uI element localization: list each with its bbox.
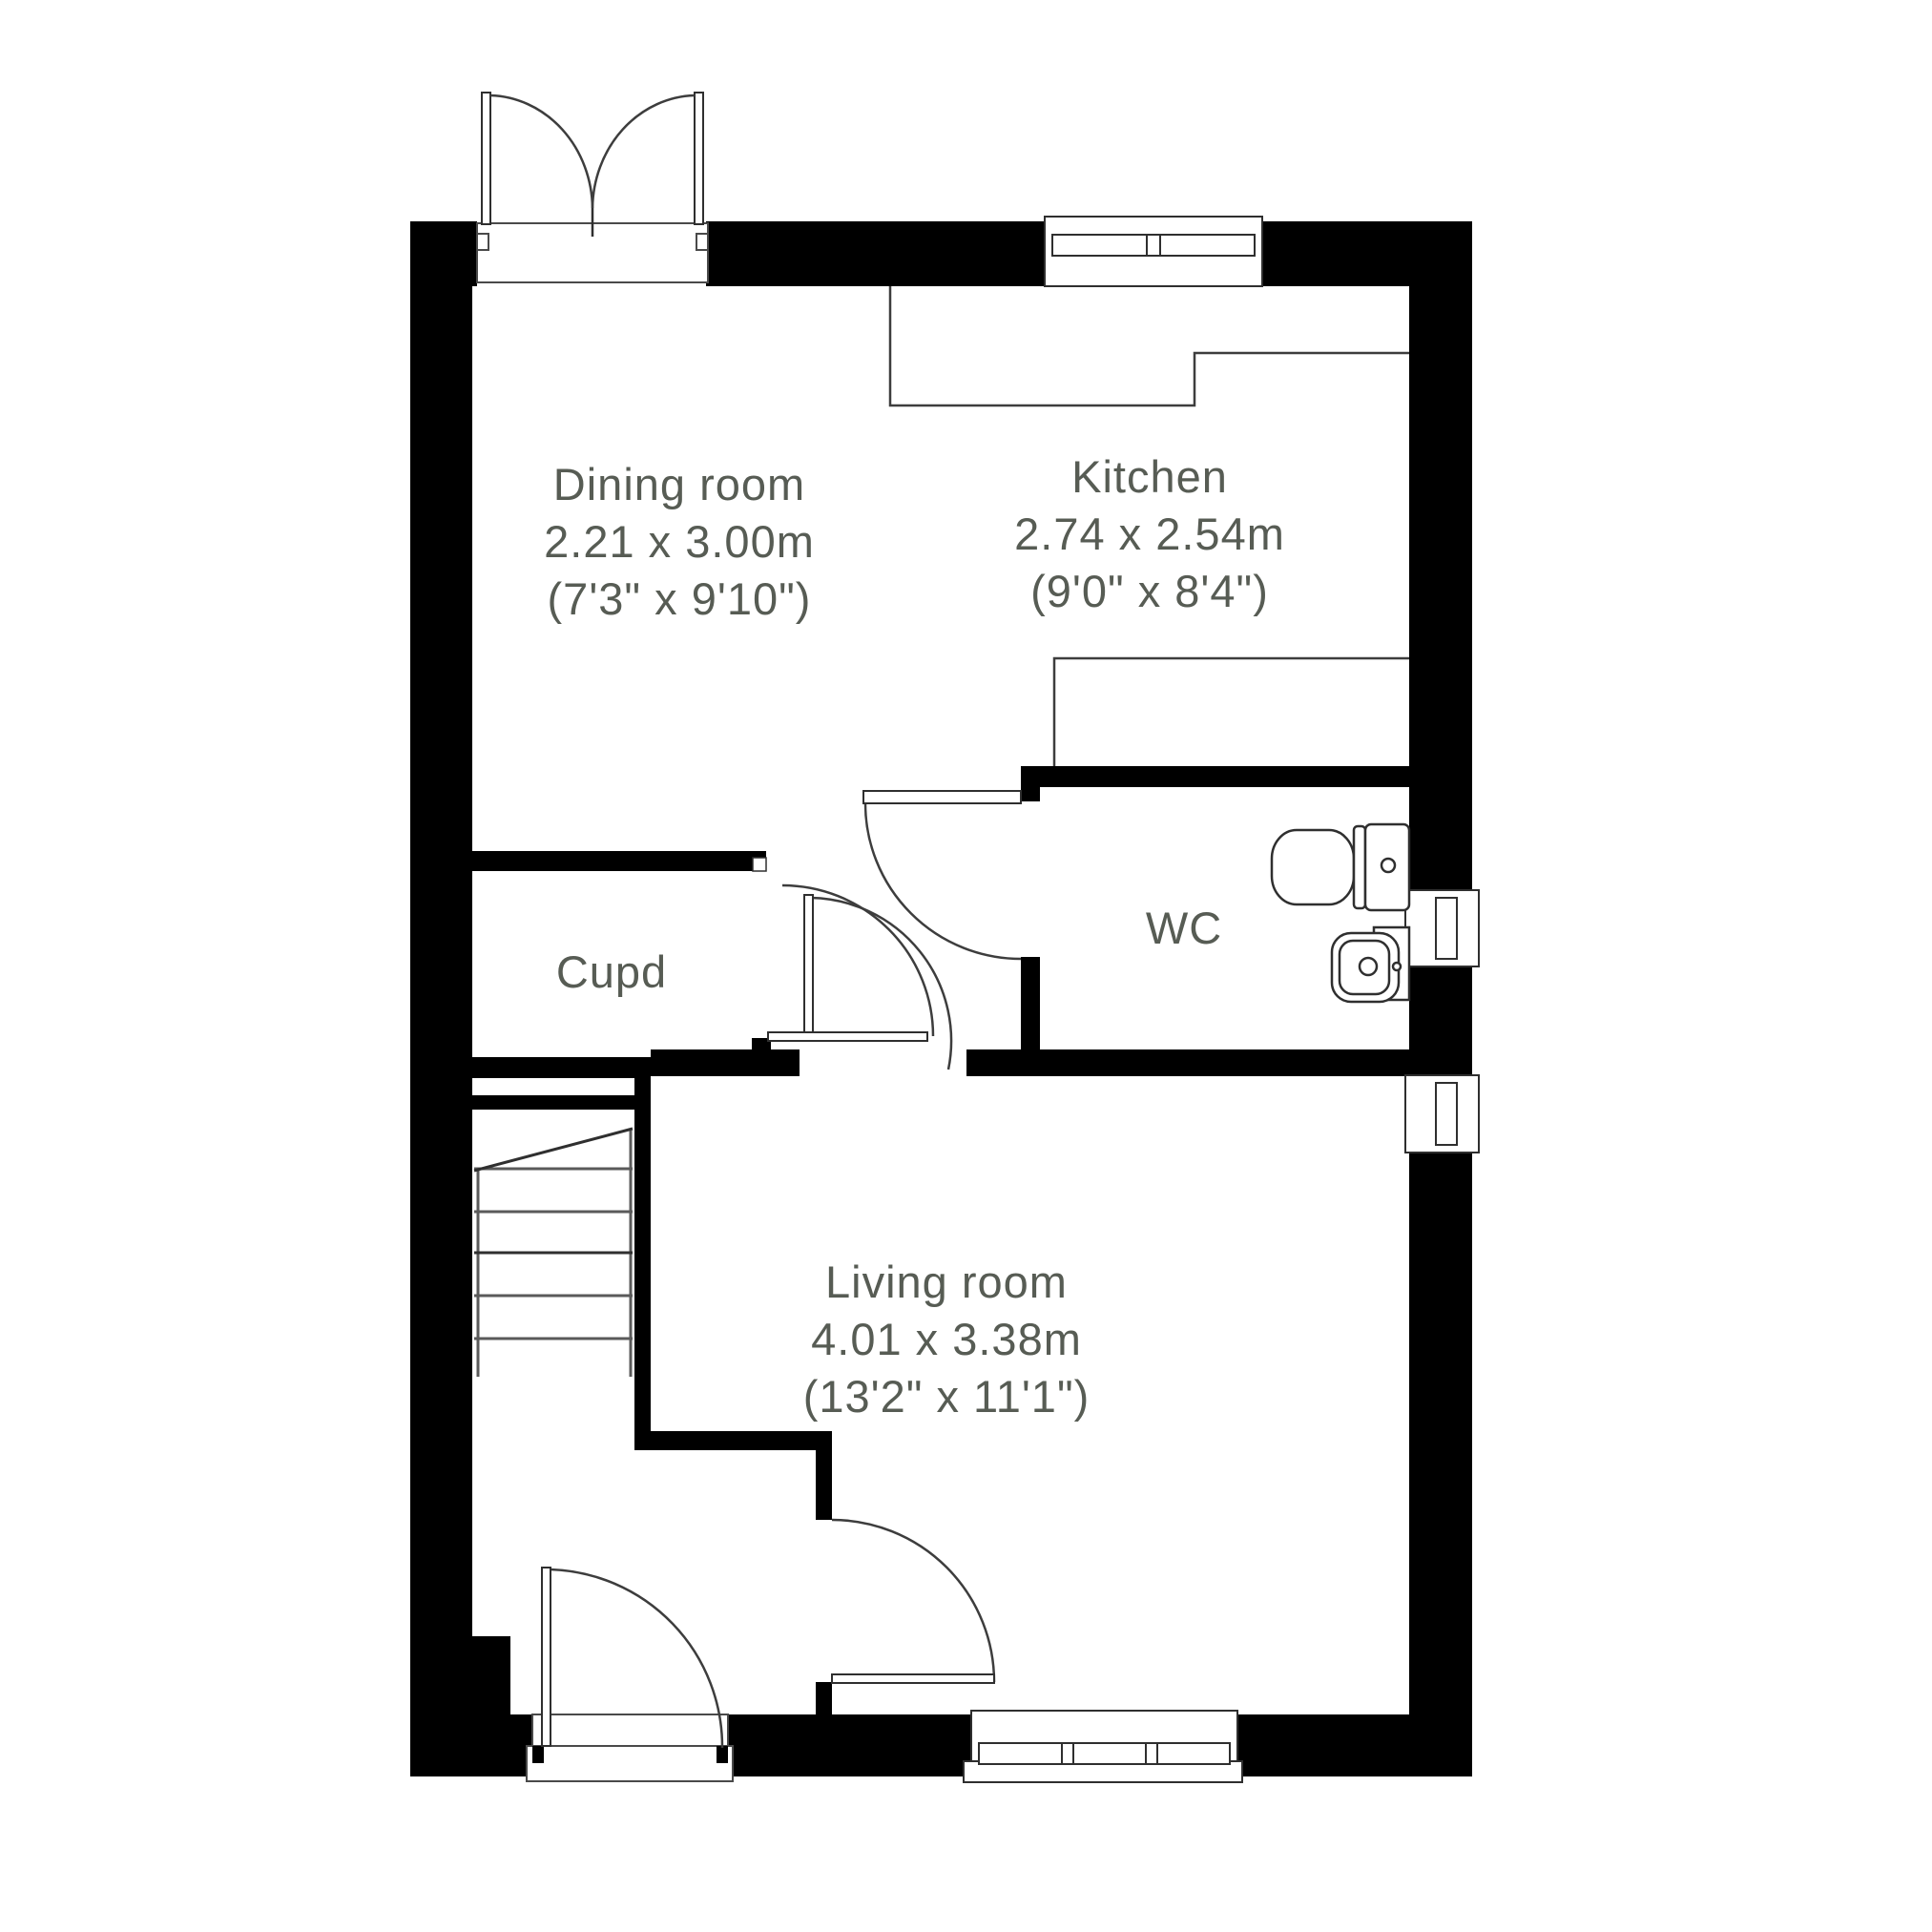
front-door (527, 1568, 733, 1781)
door-leaf (482, 93, 490, 224)
door-swing-arc (592, 95, 695, 208)
wc-top-wall (1021, 766, 1409, 787)
sink-icon (1332, 927, 1409, 1002)
window-glazing (979, 1743, 1230, 1764)
window-mullion (1147, 235, 1160, 256)
walls-interior (472, 766, 1409, 1714)
window-bottom (964, 1711, 1242, 1782)
door-swing-arc (865, 803, 1021, 959)
floorplan-drawing (0, 0, 1932, 1932)
room-size-metric: 4.01 x 3.38m (803, 1311, 1091, 1368)
door-jamb (696, 234, 708, 250)
room-name: Dining room (544, 456, 815, 513)
living-door-hinge-stub (816, 1682, 832, 1714)
door-leaf (832, 1674, 994, 1683)
floorplan: Dining room 2.21 x 3.00m (7'3" x 9'10") … (0, 0, 1932, 1932)
wall-segment (410, 1714, 532, 1776)
room-label-dining: Dining room 2.21 x 3.00m (7'3" x 9'10") (544, 456, 815, 628)
toilet-flush-button (1381, 859, 1395, 872)
french-doors (477, 93, 708, 282)
room-name: Kitchen (1014, 448, 1285, 506)
hall-south-wall-east (966, 1049, 1409, 1076)
room-name: WC (1146, 900, 1222, 957)
window-glazing (1436, 898, 1457, 959)
cupboard-wall-notch (753, 858, 766, 871)
wc-door-hinge-stub (1021, 766, 1040, 801)
toilet-icon (1272, 824, 1409, 910)
room-name: Living room (803, 1254, 1091, 1311)
kitchen-boundary-upper (890, 286, 1409, 405)
door-leaf (768, 1032, 927, 1041)
door-sill (527, 1746, 733, 1781)
wc-side-stub (1021, 957, 1040, 1052)
room-size-metric: 2.21 x 3.00m (544, 513, 815, 571)
wall-segment (728, 1714, 973, 1776)
door-stop (532, 1746, 544, 1763)
room-label-wc: WC (1146, 900, 1222, 957)
wall-segment (1409, 1153, 1472, 1776)
room-size-imperial: (9'0" x 8'4") (1014, 563, 1285, 620)
sink-tap (1393, 963, 1401, 970)
hall-south-wall-west (651, 1049, 800, 1076)
kitchen-boundary-lower (1054, 658, 1409, 766)
window-right-upper (1405, 890, 1479, 966)
toilet-bowl (1272, 830, 1354, 904)
room-label-kitchen: Kitchen 2.74 x 2.54m (9'0" x 8'4") (1014, 448, 1285, 620)
door-leaf (863, 791, 1021, 803)
stair-bottom-wall (651, 1431, 832, 1450)
wc-door (863, 791, 1021, 959)
staircase-icon (474, 1129, 633, 1377)
window-top (1045, 217, 1262, 286)
door-jamb (477, 234, 488, 250)
room-label-cupboard: Cupd (556, 944, 667, 1001)
door-leaf (804, 895, 813, 1038)
cupboard-top-wall (472, 851, 766, 871)
room-label-living: Living room 4.01 x 3.38m (13'2" x 11'1") (803, 1254, 1091, 1425)
window-right-lower (1405, 1075, 1479, 1153)
fixtures (1272, 824, 1409, 1002)
sink-drain (1360, 958, 1377, 975)
door-stop (717, 1746, 728, 1763)
living-west-stub (816, 1450, 832, 1520)
door-leaf (695, 93, 703, 224)
room-size-imperial: (13'2" x 11'1") (803, 1368, 1091, 1425)
cupboard-bottom-wall (472, 1057, 651, 1078)
door-leaf (542, 1568, 551, 1746)
window-mullion (1146, 1743, 1157, 1764)
door-threshold (532, 1714, 728, 1746)
room-name: Cupd (556, 944, 667, 1001)
stair-side-wall (634, 1057, 651, 1450)
toilet-seat-joint (1354, 826, 1365, 908)
doors (477, 93, 1021, 1781)
door-swing-arc (832, 1520, 994, 1682)
window-glazing (1436, 1083, 1457, 1145)
stair-top-bar (472, 1095, 651, 1110)
room-size-metric: 2.74 x 2.54m (1014, 506, 1285, 563)
wall-segment (1409, 221, 1472, 890)
stair-break-line (474, 1129, 633, 1171)
living-room-door-west (832, 1520, 994, 1683)
wall-segment (706, 221, 1045, 286)
wall-segment (410, 221, 472, 1776)
dining-hall-door (768, 885, 951, 1070)
door-swing-arc (490, 95, 592, 208)
window-mullion (1062, 1743, 1073, 1764)
room-size-imperial: (7'3" x 9'10") (544, 571, 815, 628)
wall-segment (1409, 966, 1472, 1075)
